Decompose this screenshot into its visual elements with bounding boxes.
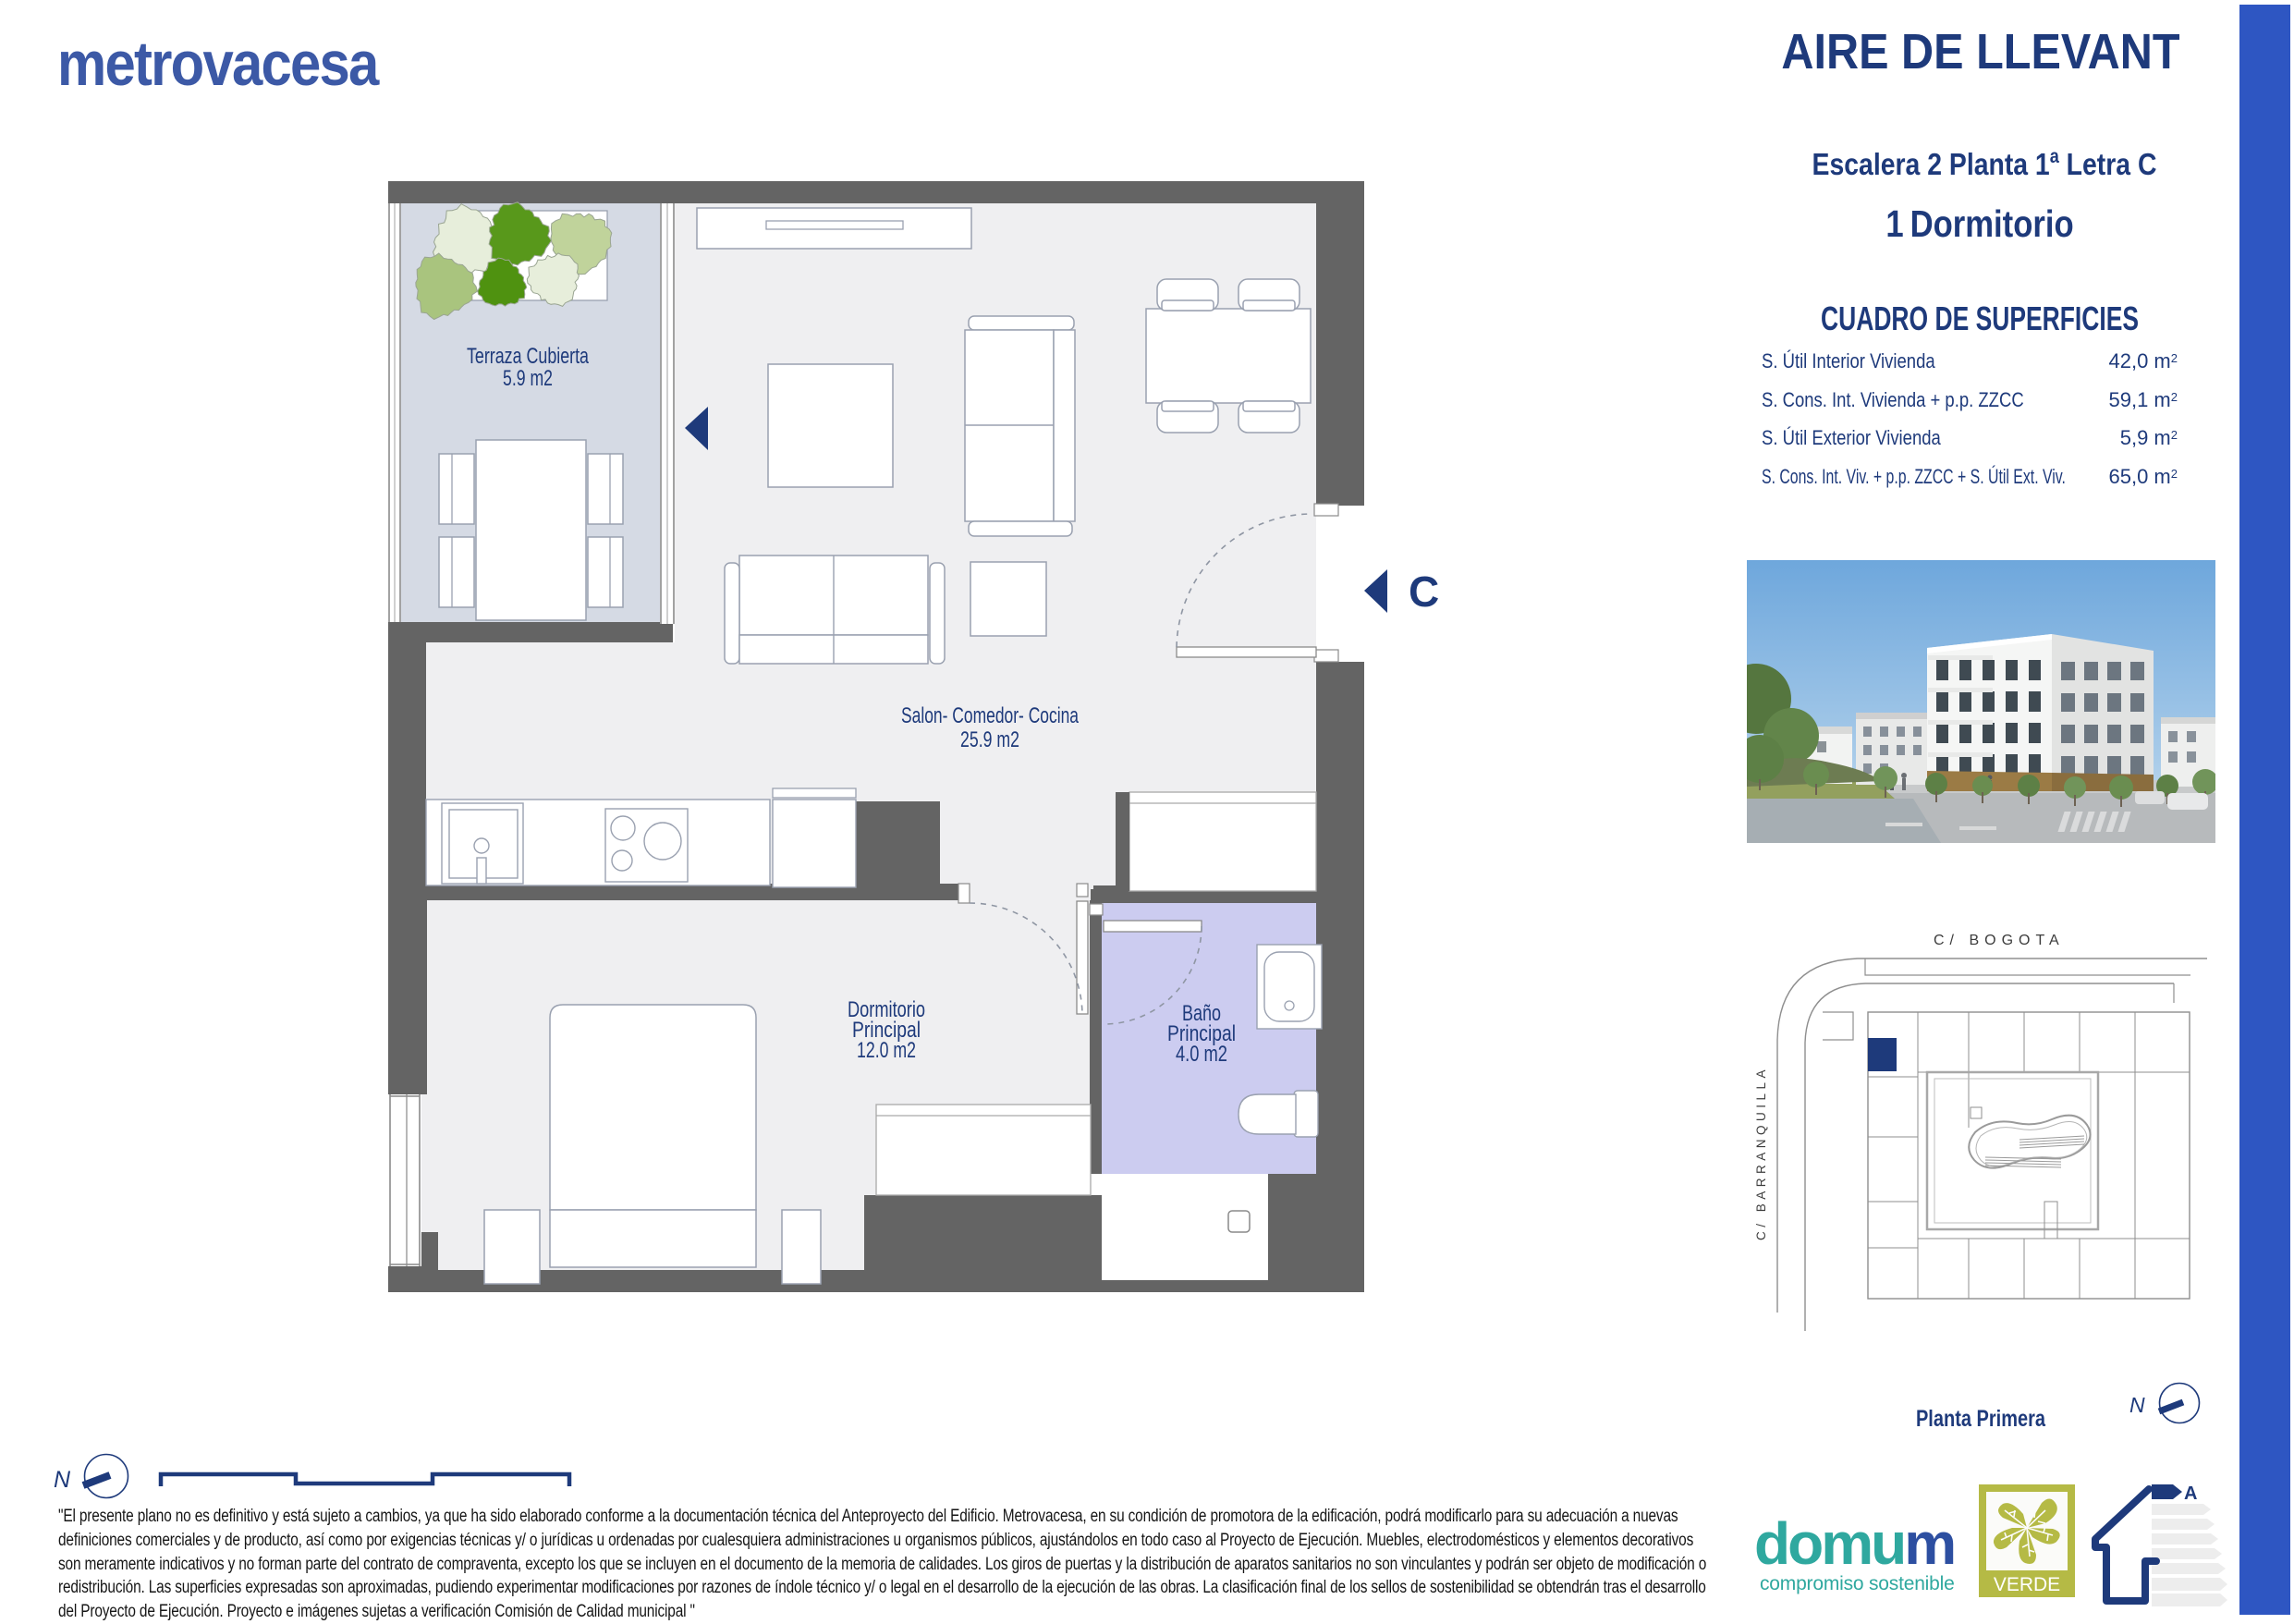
svg-text:Salon- Comedor- Cocina: Salon- Comedor- Cocina — [901, 703, 1079, 728]
svg-text:C: C — [1409, 568, 1439, 616]
svg-text:12.0 m2: 12.0 m2 — [857, 1038, 916, 1063]
svg-text:A: A — [2184, 1484, 2197, 1504]
svg-text:VERDE: VERDE — [1994, 1574, 2060, 1595]
svg-text:N: N — [2129, 1393, 2145, 1417]
svg-text:5.9 m2: 5.9 m2 — [503, 366, 553, 391]
svg-text:Terraza Cubierta: Terraza Cubierta — [467, 344, 589, 369]
svg-text:25.9 m2: 25.9 m2 — [960, 727, 1019, 752]
svg-text:4.0 m2: 4.0 m2 — [1176, 1042, 1227, 1067]
svg-text:N: N — [54, 1467, 71, 1493]
svg-text:C/ BOGOTA: C/ BOGOTA — [1934, 933, 2065, 948]
